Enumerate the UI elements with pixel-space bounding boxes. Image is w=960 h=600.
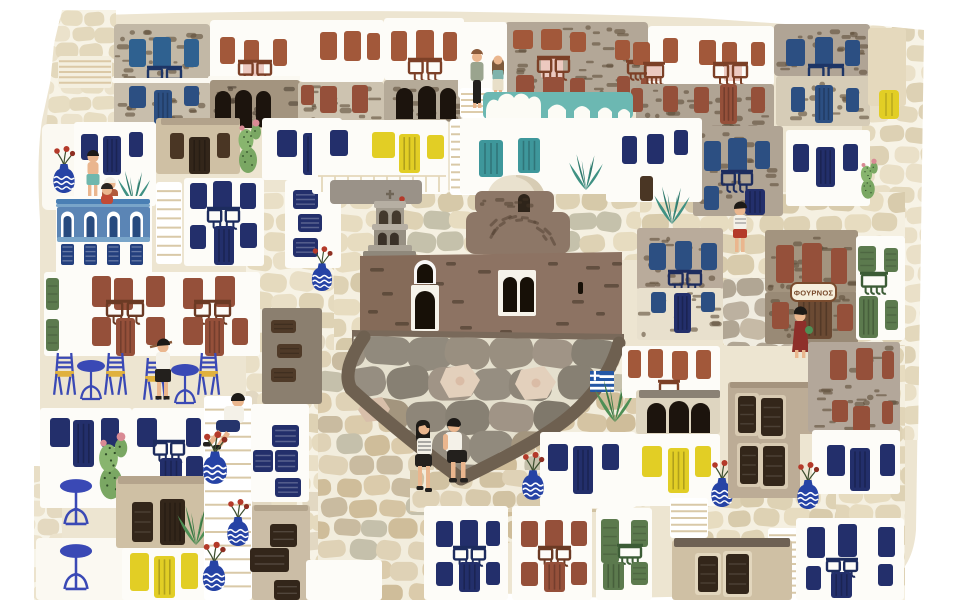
svg-text:ΦΟΥΡΝΟΣ: ΦΟΥΡΝΟΣ (794, 289, 834, 298)
